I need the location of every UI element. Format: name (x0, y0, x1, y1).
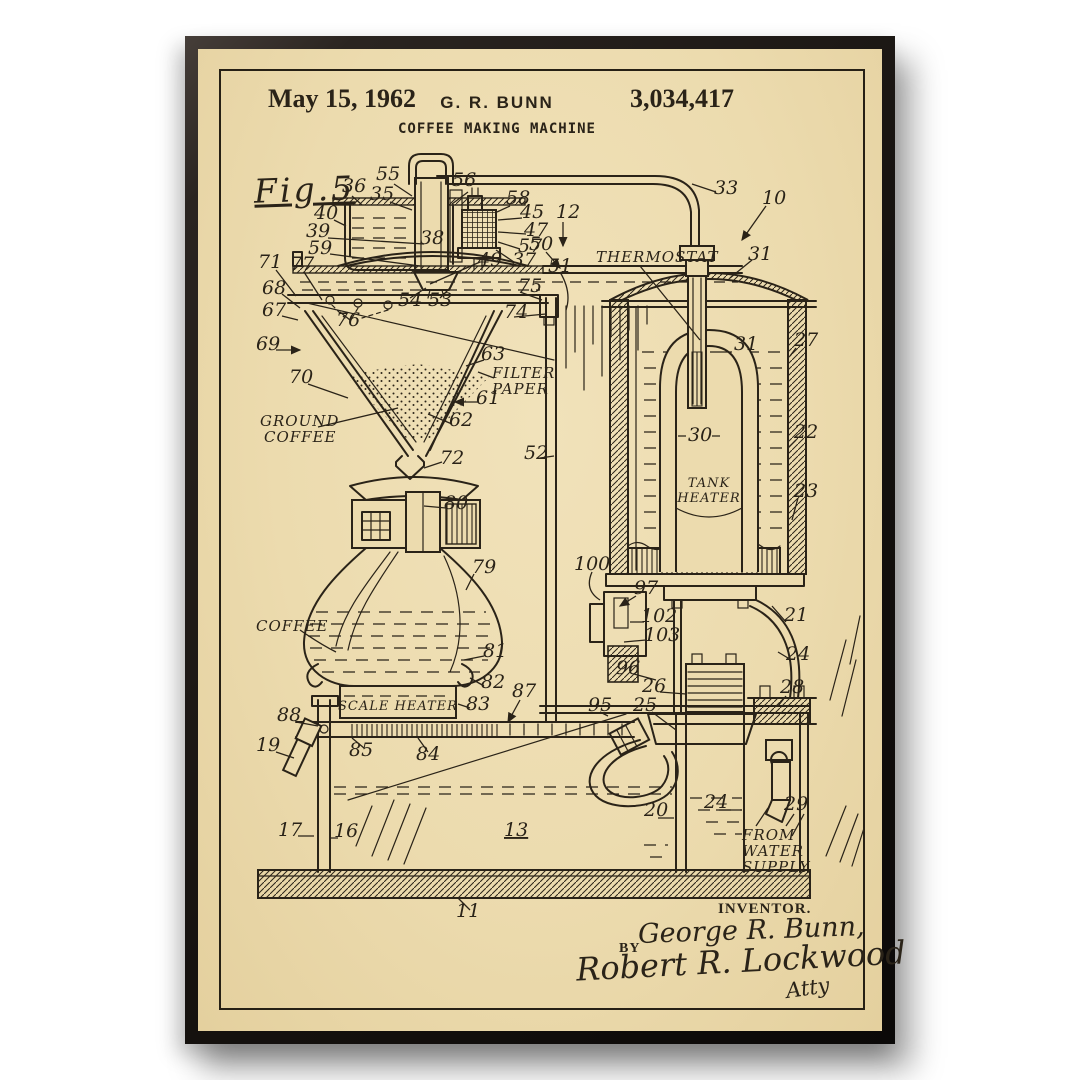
part-number-label: 68 (262, 277, 286, 299)
part-number-label: 83 (466, 693, 490, 715)
part-number-label: 24 (785, 643, 810, 665)
part-number-label: 53 (428, 289, 452, 311)
part-number-label: 67 (262, 299, 287, 321)
part-number-label: 20 (643, 799, 668, 821)
part-number-label: 31 (734, 333, 758, 355)
drawing-word-label: SUPPLY (742, 858, 811, 876)
part-number-label: 17 (278, 819, 303, 841)
part-number-label: 27 (793, 329, 819, 351)
part-number-label: 31 (748, 243, 772, 265)
part-number-label: 87 (512, 680, 537, 702)
part-number-label: 36 (342, 175, 366, 197)
part-number-label: 21 (783, 604, 808, 626)
part-number-label: 81 (483, 640, 507, 662)
part-number-label: 95 (588, 694, 612, 716)
part-number-label: 35 (370, 183, 394, 205)
drawing-word-label: COFFEE (256, 617, 329, 635)
part-number-label: 62 (449, 409, 473, 431)
drawing-word-label: SCALE HEATER (338, 699, 458, 714)
part-number-label: 49 (477, 249, 502, 271)
part-number-label: 29 (783, 793, 808, 815)
part-number-label: 84 (416, 743, 440, 765)
part-number-label: 70 (289, 366, 313, 388)
carafe (296, 477, 634, 800)
part-number-label: 56 (452, 169, 476, 191)
part-number-label: 23 (793, 480, 818, 502)
part-number-label: 75 (518, 275, 542, 297)
part-number-label: 100 (574, 553, 610, 575)
part-number-label: 76 (336, 309, 360, 331)
part-number-label: 54 (398, 289, 422, 311)
part-number-label: 96 (616, 657, 640, 679)
part-number-label: 38 (420, 227, 444, 249)
part-number-label: 103 (644, 624, 680, 646)
drawing-word-label: HEATER (676, 491, 740, 506)
part-number-label: 97 (634, 577, 659, 599)
part-number-label: 16 (334, 820, 358, 842)
part-number-label: 24 (703, 791, 728, 813)
part-number-label: 52 (524, 442, 548, 464)
part-number-label: 19 (256, 734, 280, 756)
part-number-label: 72 (440, 447, 464, 469)
part-number-label: 22 (793, 421, 818, 443)
part-number-label: 61 (476, 387, 500, 409)
patent-drawing: 3655355658454757374039593812505133103149… (0, 0, 1080, 1080)
part-number-label: 10 (762, 187, 786, 209)
part-number-label: 13 (504, 819, 528, 841)
part-number-label: 51 (548, 255, 572, 277)
part-number-label: 85 (349, 739, 373, 761)
part-number-label: 77 (290, 253, 315, 275)
part-number-label: 12 (556, 201, 580, 223)
part-number-label: 71 (258, 251, 282, 273)
part-number-label: 30 (688, 424, 712, 446)
part-number-label: 88 (277, 704, 301, 726)
part-number-label: 69 (256, 333, 280, 355)
part-number-label: 11 (456, 900, 480, 922)
valve-assembly (590, 574, 816, 822)
drawing-word-label: TANK (688, 476, 731, 491)
part-number-label: 55 (376, 163, 400, 185)
part-number-label: 79 (472, 556, 496, 578)
hot-water-tank (602, 246, 816, 574)
part-number-label: 28 (779, 676, 804, 698)
part-number-label: 25 (632, 694, 657, 716)
part-number-label: 50 (529, 233, 553, 255)
poster-scene: May 15, 1962 G. R. BUNN 3,034,417 COFFEE… (0, 0, 1080, 1080)
part-number-label: 63 (481, 343, 505, 365)
part-number-label: 74 (504, 301, 528, 323)
part-number-label: 80 (444, 492, 468, 514)
drawing-word-label: COFFEE (264, 428, 337, 446)
drawing-word-label: THERMOSTAT (596, 248, 718, 266)
part-number-label: 82 (481, 671, 505, 693)
part-number-label: 33 (714, 177, 738, 199)
